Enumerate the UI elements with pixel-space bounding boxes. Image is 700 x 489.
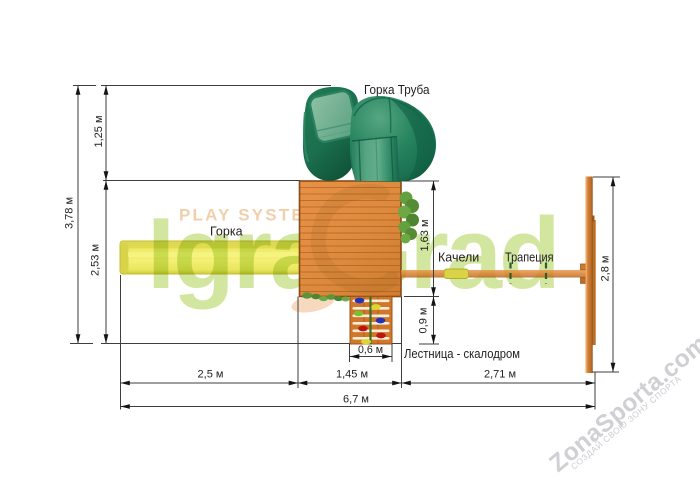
svg-text:1,63 м: 1,63 м	[419, 219, 431, 251]
svg-text:Качели: Качели	[438, 251, 479, 265]
svg-text:2,53 м: 2,53 м	[90, 244, 102, 276]
svg-text:1,45 м: 1,45 м	[336, 369, 368, 381]
svg-text:0,6 м: 0,6 м	[358, 344, 383, 356]
svg-text:1,25 м: 1,25 м	[93, 115, 105, 147]
svg-text:0,9 м: 0,9 м	[418, 308, 430, 334]
svg-text:6,7 м: 6,7 м	[343, 394, 369, 406]
svg-text:Горка Труба: Горка Труба	[364, 83, 430, 97]
svg-text:Горка: Горка	[210, 225, 243, 239]
svg-text:2,8 м: 2,8 м	[600, 256, 612, 282]
svg-text:2,71 м: 2,71 м	[484, 369, 516, 381]
svg-text:3,78 м: 3,78 м	[64, 197, 76, 229]
svg-text:Трапеция: Трапеция	[505, 251, 554, 265]
svg-text:2,5 м: 2,5 м	[198, 369, 224, 381]
svg-text:Лестница - скалодром: Лестница - скалодром	[404, 347, 520, 361]
